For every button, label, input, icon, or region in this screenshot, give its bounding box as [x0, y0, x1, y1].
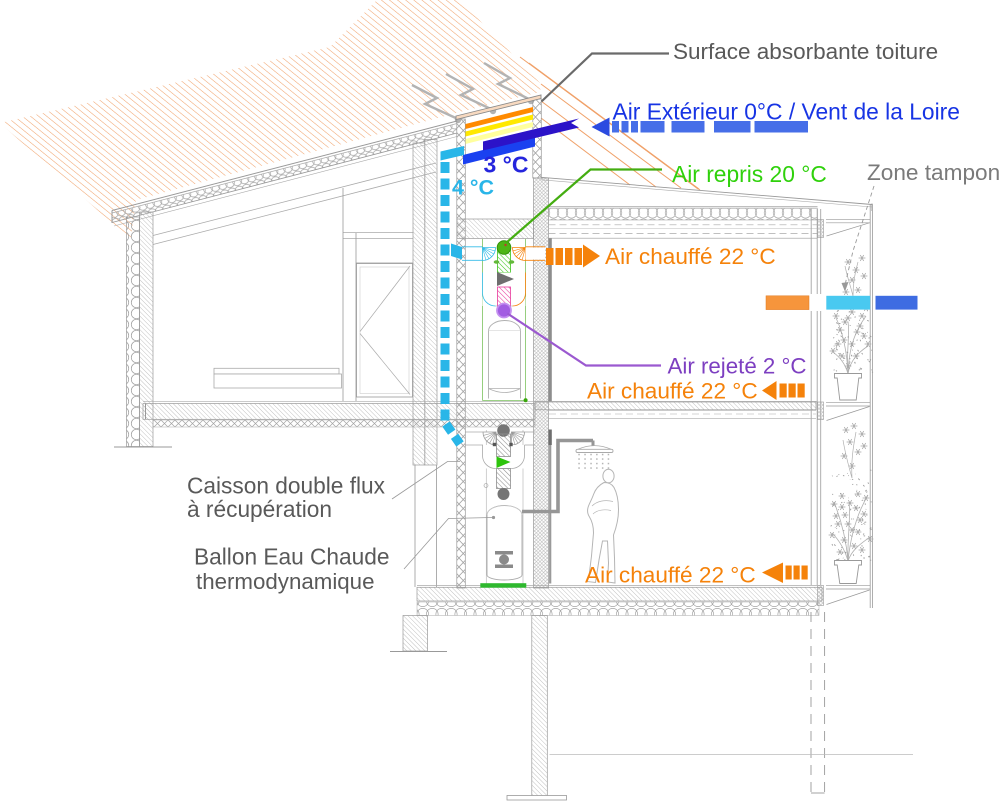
svg-text:Air Extérieur 0°C / Vent de la: Air Extérieur 0°C / Vent de la Loire — [613, 99, 960, 125]
svg-text:thermodynamique: thermodynamique — [196, 569, 374, 594]
svg-text:Air chauffé 22 °C: Air chauffé 22 °C — [585, 563, 756, 588]
svg-text:Caisson double flux: Caisson double flux — [187, 473, 386, 499]
svg-text:Air repris 20 °C: Air repris 20 °C — [672, 161, 827, 187]
svg-text:Air chauffé 22 °C: Air chauffé 22 °C — [605, 244, 776, 269]
svg-text:Air rejeté 2 °C: Air rejeté 2 °C — [668, 354, 807, 379]
svg-text:Surface absorbante toiture: Surface absorbante toiture — [673, 39, 938, 64]
svg-text:à récupération: à récupération — [187, 496, 332, 522]
svg-text:Air chauffé 22 °C: Air chauffé 22 °C — [587, 379, 758, 404]
svg-text:4 °C: 4 °C — [452, 176, 494, 200]
svg-text:3 °C: 3 °C — [484, 152, 529, 178]
svg-text:Ballon Eau Chaude: Ballon Eau Chaude — [194, 544, 390, 570]
svg-text:Zone tampon: Zone tampon — [867, 160, 1000, 185]
